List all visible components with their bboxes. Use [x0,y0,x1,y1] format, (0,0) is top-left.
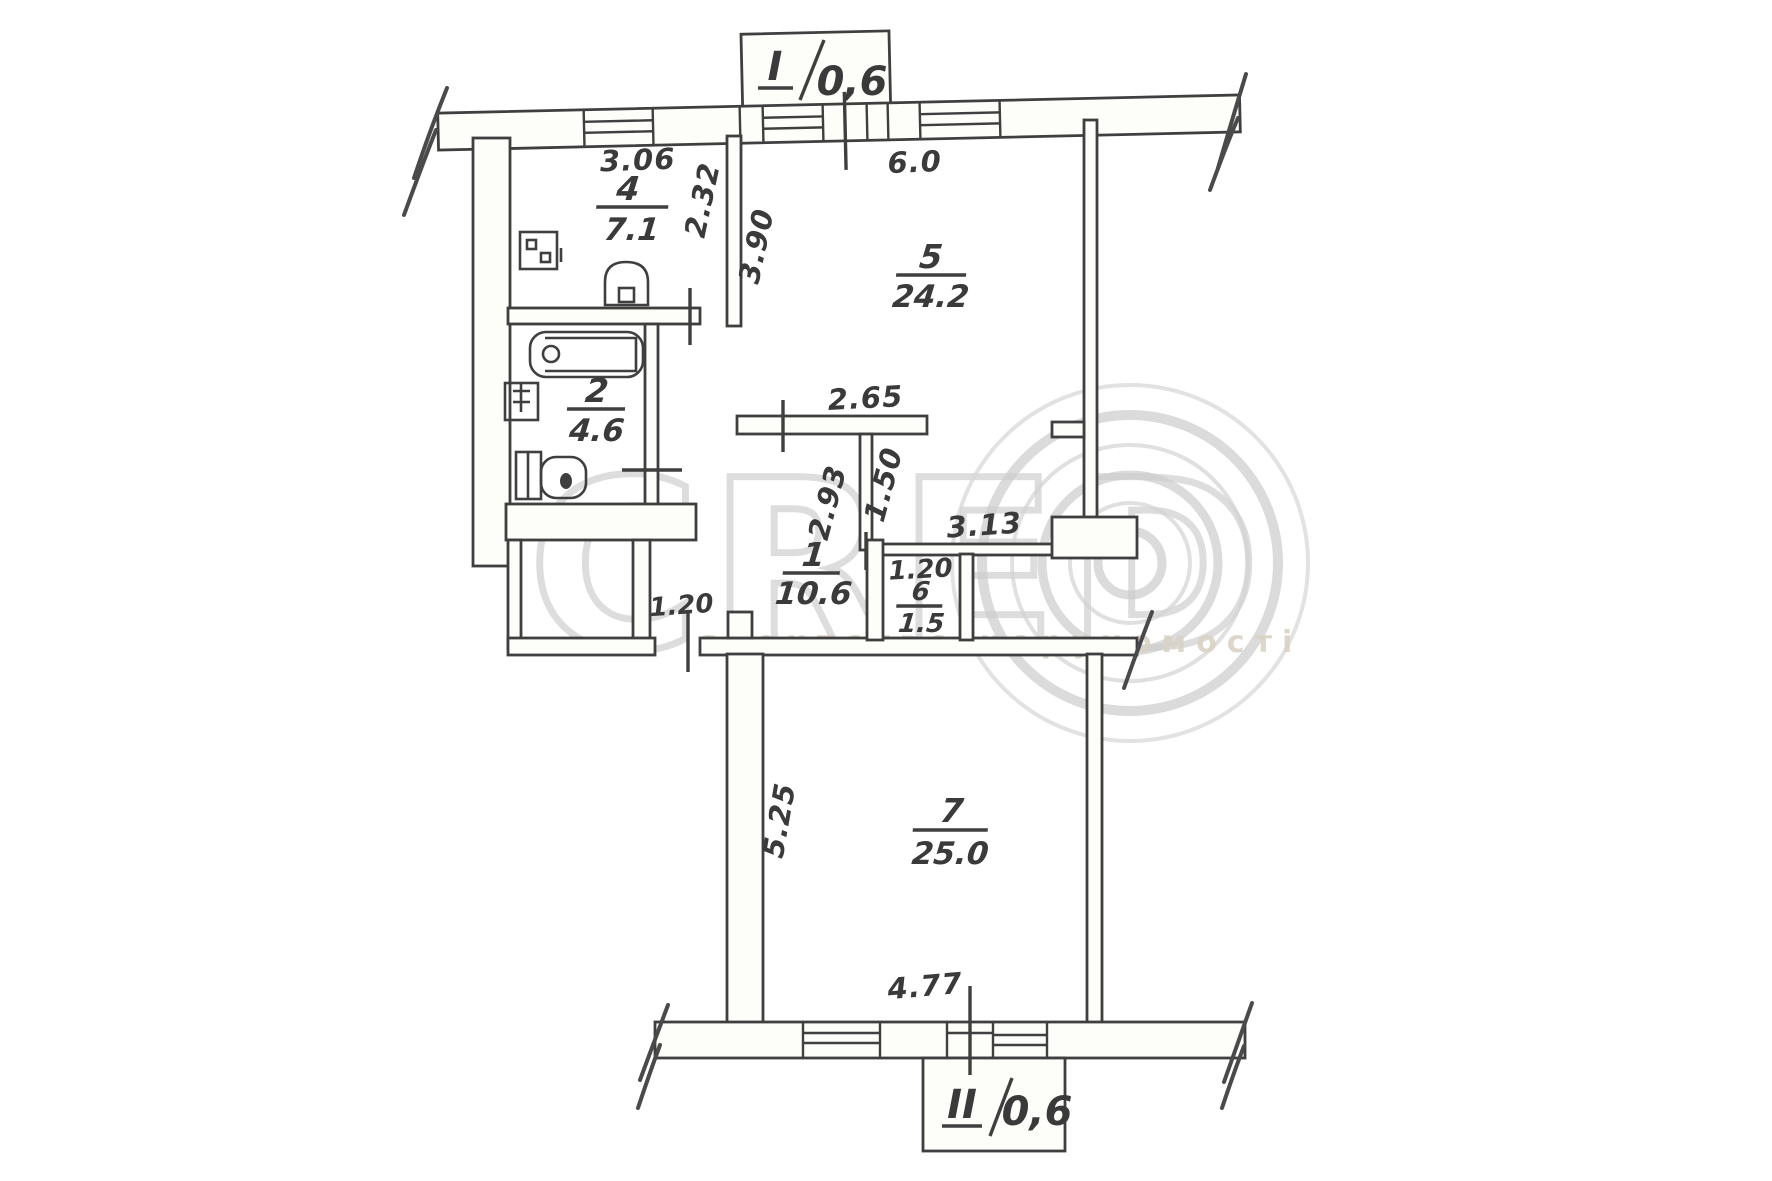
bottom-wall-band [655,1022,1245,1058]
bedroom-right-wall [1087,654,1102,1024]
room-number: 5 [918,237,945,276]
bathroom-right-wall [645,324,658,508]
stove-icon [520,232,561,269]
closet-left-wall [867,540,883,640]
room-label-kitchen: 4 7.1 [592,169,672,248]
balcony-area: 0,6 [1002,1089,1073,1135]
dim-kitchen-width: 3.06 [599,142,676,179]
vestibule-left-wall [508,540,521,648]
closet-right-wall [960,554,973,640]
left-exterior-wall [473,138,510,566]
dim-kitchen-depth: 2.32 [678,159,727,240]
vestibule-right-wall [633,540,650,640]
dim-hall-opening: 2.65 [827,379,904,417]
room-number: 2 [583,371,610,410]
wall-pier-small [728,612,752,638]
floor-plan-drawing: CRED агентство нерухомості [0,0,1772,1181]
dim-living-width: 6.0 [887,144,943,180]
wall-pier-large [1052,517,1137,558]
scanned-floor-plan-page: CRED агентство нерухомості [0,0,1772,1181]
room-area: 10.6 [773,576,853,612]
living-right-wall [1084,120,1097,518]
balcony-area: 0,6 [817,59,888,105]
dim-bedroom-width: 4.77 [885,966,964,1007]
room-area: 25.0 [910,836,990,872]
room-label-bedroom: 7 25.0 [908,791,995,872]
kitchen-bathroom-wall [508,308,700,324]
wall-break-top-left [404,88,447,215]
room-area: 4.6 [566,413,626,449]
room-number: 7 [938,791,965,830]
bathroom-bottom-thick-wall [506,504,696,540]
living-wall-notch [1052,422,1084,437]
room-label-living: 5 24.2 [891,237,976,315]
room-label-bathroom: 2 4.6 [563,371,631,449]
balcony-numeral: II [947,1082,977,1128]
hall-bottom-wall-left [508,638,655,655]
kitchen-living-wall [727,136,741,326]
dim-closet-width: 1.20 [888,553,954,586]
room-area: 24.2 [891,279,971,315]
balcony-numeral: I [768,44,783,90]
dim-door-width: 1.20 [648,589,714,623]
dim-partition-width: 3.13 [945,505,1023,544]
water-heater-icon [605,262,648,305]
room-area: 7.1 [602,212,661,248]
bathtub-icon [530,332,643,377]
hall-bottom-wall-right [700,638,1137,655]
living-bottom-wall [737,416,927,434]
room-area: 1.5 [897,609,946,639]
